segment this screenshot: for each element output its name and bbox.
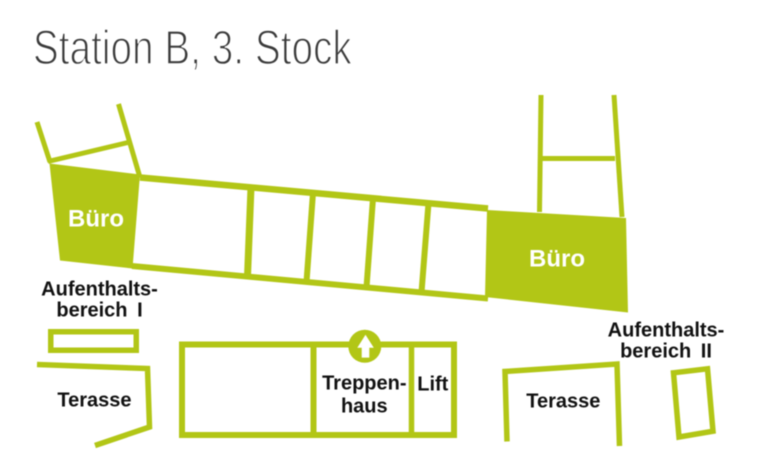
svg-text:Terasse: Terasse: [526, 390, 600, 412]
svg-text:Terasse: Terasse: [57, 390, 131, 412]
svg-text:Aufenthalts-: Aufenthalts-: [608, 319, 725, 341]
svg-text:Station B, 3. Stock: Station B, 3. Stock: [33, 22, 352, 75]
svg-text:haus: haus: [341, 396, 388, 418]
svg-text:Aufenthalts-: Aufenthalts-: [41, 279, 158, 301]
svg-text:Lift: Lift: [417, 373, 448, 395]
svg-text:Treppen-: Treppen-: [322, 372, 406, 394]
svg-text:Büro: Büro: [68, 206, 124, 233]
svg-text:bereich I: bereich I: [56, 300, 142, 322]
svg-text:bereich II: bereich II: [620, 341, 712, 363]
svg-text:Büro: Büro: [529, 246, 585, 273]
